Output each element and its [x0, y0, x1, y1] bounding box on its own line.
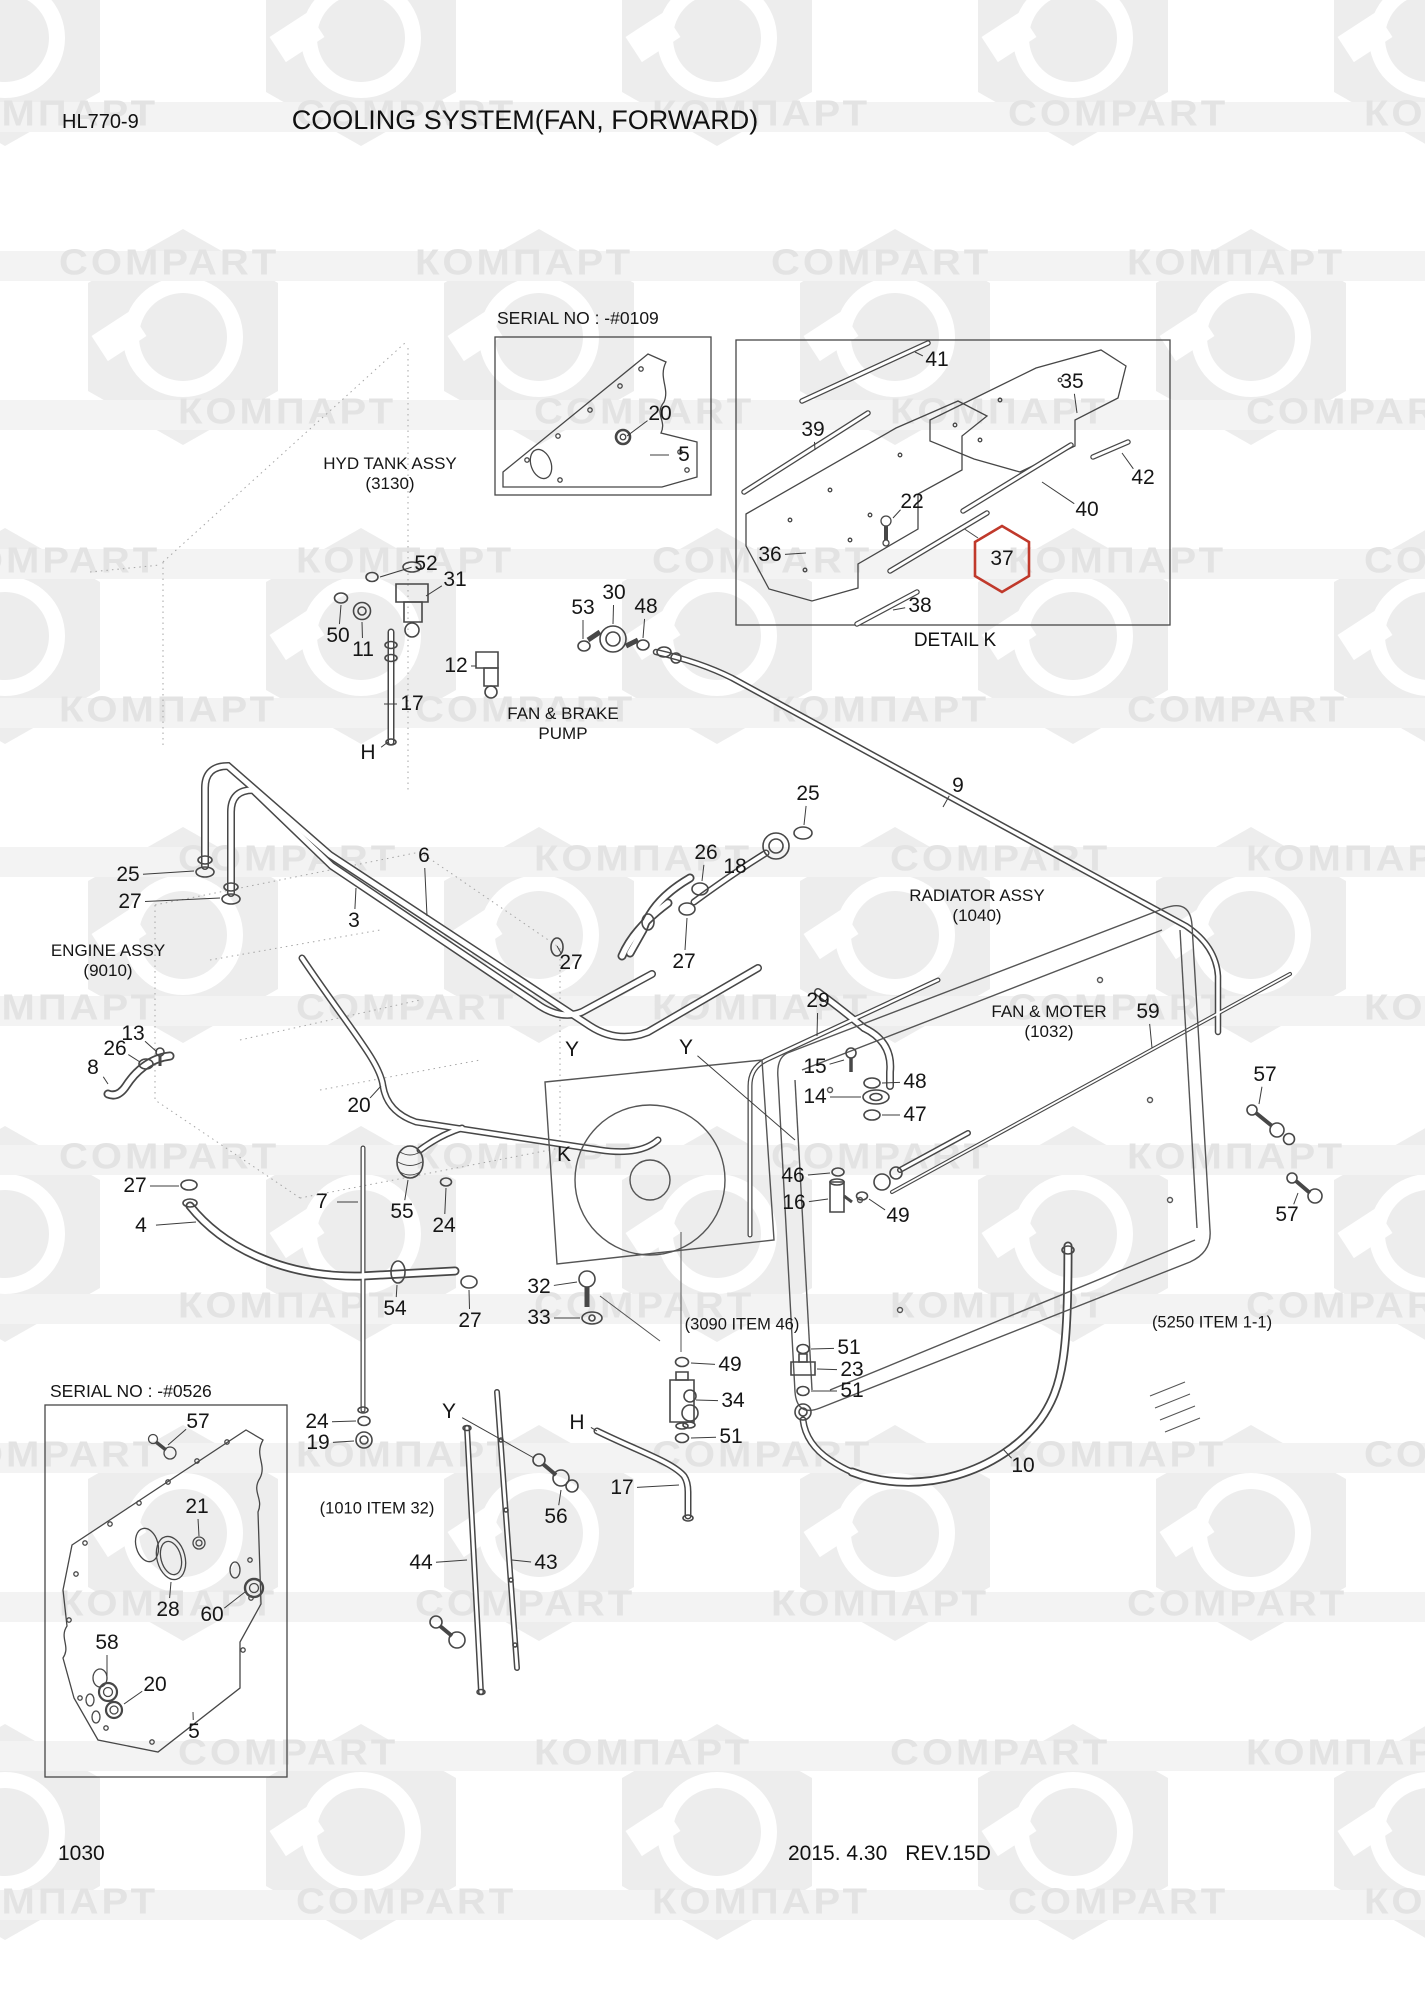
- labels-layer: HL770-9 COOLING SYSTEM(FAN, FORWARD) SER…: [0, 0, 1425, 2000]
- part-callout-8-33: 8: [87, 1056, 99, 1080]
- part-callout-41-2: 41: [925, 348, 948, 372]
- ref-note-0: (3090 ITEM 46): [685, 1316, 800, 1335]
- part-callout-58-77: 58: [95, 1631, 118, 1655]
- ref-note-2: (1010 ITEM 32): [320, 1500, 435, 1519]
- part-callout-27-56: 27: [458, 1309, 481, 1333]
- part-callout-5-79: 5: [188, 1720, 200, 1744]
- part-callout-51-64: 51: [840, 1379, 863, 1403]
- revision-date: 2015. 4.30: [788, 1842, 887, 1865]
- part-callout-k-37: K: [557, 1143, 571, 1167]
- part-callout-59-46: 59: [1136, 1000, 1159, 1024]
- part-callout-17-19: 17: [400, 692, 423, 716]
- part-callout-3-24: 3: [348, 909, 360, 933]
- part-callout-44-71: 44: [409, 1551, 432, 1575]
- part-callout-h-20: H: [360, 741, 375, 765]
- part-callout-9-27: 9: [952, 774, 964, 798]
- serial-note-top: SERIAL NO : -#0109: [497, 308, 659, 329]
- part-callout-y-35: Y: [565, 1038, 579, 1062]
- part-callout-55-53: 55: [390, 1200, 413, 1224]
- part-callout-5-1: 5: [678, 443, 690, 467]
- part-callout-19-66: 19: [306, 1431, 329, 1455]
- catalog-page: КОМПАРТCOMPARTКОМПАРТCOMPARTКОМПАРТCOMPA…: [0, 0, 1425, 2000]
- part-callout-25-21: 25: [116, 863, 139, 887]
- part-callout-6-23: 6: [418, 844, 430, 868]
- assembly-label-radiator-assy: RADIATOR ASSY(1040): [909, 886, 1044, 926]
- part-callout-32-57: 32: [527, 1275, 550, 1299]
- part-callout-51-61: 51: [719, 1425, 742, 1449]
- part-callout-49-45: 49: [886, 1204, 909, 1228]
- serial-note-bottom: SERIAL NO : -#0526: [50, 1381, 212, 1402]
- part-callout-50-13: 50: [326, 624, 349, 648]
- part-callout-42-6: 42: [1131, 466, 1154, 490]
- part-callout-28-75: 28: [156, 1598, 179, 1622]
- part-callout-51-62: 51: [837, 1336, 860, 1360]
- part-callout-33-58: 33: [527, 1306, 550, 1330]
- part-callout-57-47: 57: [1253, 1063, 1276, 1087]
- part-callout-49-59: 49: [718, 1353, 741, 1377]
- part-callout-36-8: 36: [758, 543, 781, 567]
- part-callout-43-72: 43: [534, 1551, 557, 1575]
- part-callout-38-10: 38: [908, 594, 931, 618]
- part-callout-26-32: 26: [103, 1037, 126, 1061]
- part-callout-7-52: 7: [316, 1190, 328, 1214]
- part-callout-h-69: H: [569, 1411, 584, 1435]
- part-callout-12-15: 12: [444, 654, 467, 678]
- revision-code: REV.15D: [905, 1842, 991, 1865]
- part-callout-20-34: 20: [347, 1094, 370, 1118]
- part-callout-24-54: 24: [432, 1214, 455, 1238]
- part-callout-46-43: 46: [781, 1164, 804, 1188]
- part-callout-17-70: 17: [610, 1476, 633, 1500]
- part-callout-53-16: 53: [571, 596, 594, 620]
- part-callout-60-76: 60: [200, 1603, 223, 1627]
- part-callout-52-11: 52: [414, 552, 437, 576]
- part-callout-57-48: 57: [1275, 1203, 1298, 1227]
- model-code: HL770-9: [62, 111, 139, 134]
- part-callout-y-68: Y: [442, 1400, 456, 1424]
- ref-note-1: (5250 ITEM 1-1): [1152, 1314, 1272, 1333]
- part-callout-11-14: 11: [352, 638, 374, 662]
- part-callout-22-5: 22: [900, 490, 923, 514]
- part-callout-20-0: 20: [648, 402, 671, 426]
- assembly-label-fan-brake-pump: FAN & BRAKEPUMP: [507, 704, 618, 744]
- part-callout-18-29: 18: [723, 855, 746, 879]
- part-callout-27-25: 27: [559, 951, 582, 975]
- part-callout-34-60: 34: [721, 1389, 744, 1413]
- part-callout-27-50: 27: [123, 1174, 146, 1198]
- part-callout-14-41: 14: [803, 1085, 826, 1109]
- part-callout-30-17: 30: [602, 581, 625, 605]
- page-number: 1030: [58, 1842, 105, 1866]
- assembly-label-fan-moter: FAN & MOTER(1032): [991, 1002, 1106, 1042]
- part-callout-y-36: Y: [679, 1036, 693, 1060]
- part-callout-39-4: 39: [801, 418, 824, 442]
- part-callout-27-22: 27: [118, 890, 141, 914]
- assembly-label-engine-assy: ENGINE ASSY(9010): [51, 941, 165, 981]
- part-callout-20-78: 20: [143, 1673, 166, 1697]
- revision-text: 2015. 4.30REV.15D: [788, 1842, 1009, 1866]
- page-title: COOLING SYSTEM(FAN, FORWARD): [255, 105, 795, 136]
- part-callout-31-12: 31: [443, 568, 466, 592]
- part-callout-48-40: 48: [903, 1070, 926, 1094]
- part-callout-48-18: 48: [634, 595, 657, 619]
- part-callout-25-26: 25: [796, 782, 819, 806]
- part-callout-27-30: 27: [672, 950, 695, 974]
- part-callout-47-42: 47: [903, 1103, 926, 1127]
- part-callout-54-55: 54: [383, 1297, 406, 1321]
- part-callout-40-7: 40: [1075, 498, 1098, 522]
- part-callout-10-49: 10: [1011, 1454, 1034, 1478]
- part-callout-21-74: 21: [185, 1495, 208, 1519]
- part-callout-35-3: 35: [1060, 370, 1083, 394]
- part-callout-57-73: 57: [186, 1410, 209, 1434]
- part-callout-29-38: 29: [806, 989, 829, 1013]
- part-callout-15-39: 15: [803, 1055, 826, 1079]
- part-callout-37-9: 37: [990, 547, 1013, 571]
- assembly-label-hyd-tank-assy: HYD TANK ASSY(3130): [323, 454, 457, 494]
- part-callout-16-44: 16: [782, 1191, 805, 1215]
- part-callout-56-67: 56: [544, 1505, 567, 1529]
- part-callout-4-51: 4: [135, 1214, 147, 1238]
- part-callout-26-28: 26: [694, 841, 717, 865]
- detail-k-caption: DETAIL K: [855, 630, 1055, 652]
